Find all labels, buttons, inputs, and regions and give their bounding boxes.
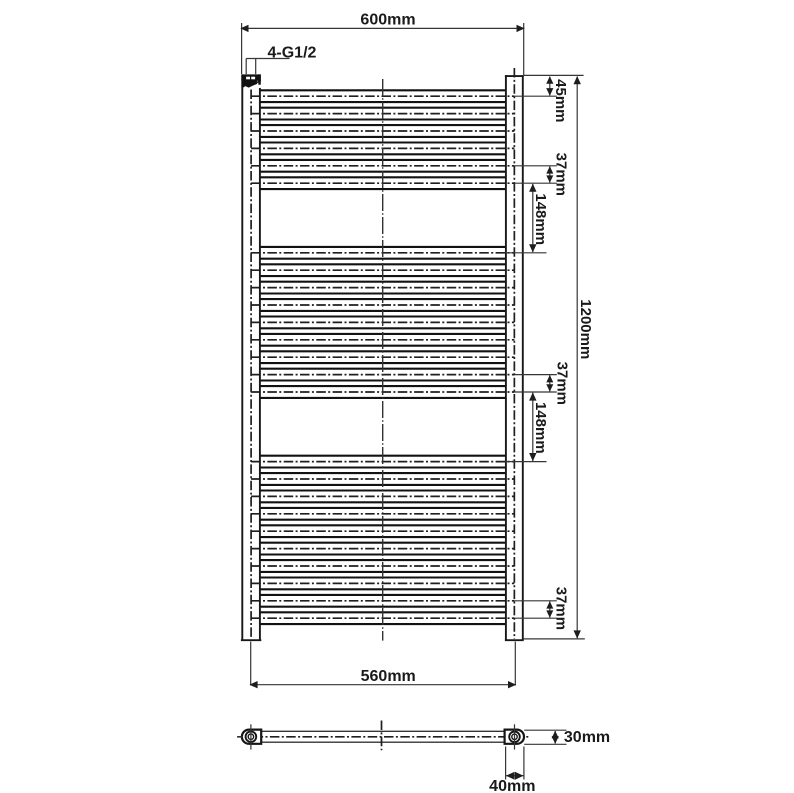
svg-text:37mm: 37mm (553, 587, 570, 630)
svg-text:560mm: 560mm (361, 668, 416, 685)
svg-text:148mm: 148mm (532, 193, 549, 245)
svg-text:45mm: 45mm (552, 79, 569, 122)
svg-text:1200mm: 1200mm (577, 299, 594, 359)
svg-text:30mm: 30mm (564, 729, 610, 746)
svg-text:40mm: 40mm (489, 778, 535, 793)
svg-text:37mm: 37mm (553, 153, 570, 196)
svg-text:37mm: 37mm (554, 362, 571, 405)
svg-text:148mm: 148mm (532, 402, 549, 454)
svg-text:600mm: 600mm (360, 11, 415, 28)
